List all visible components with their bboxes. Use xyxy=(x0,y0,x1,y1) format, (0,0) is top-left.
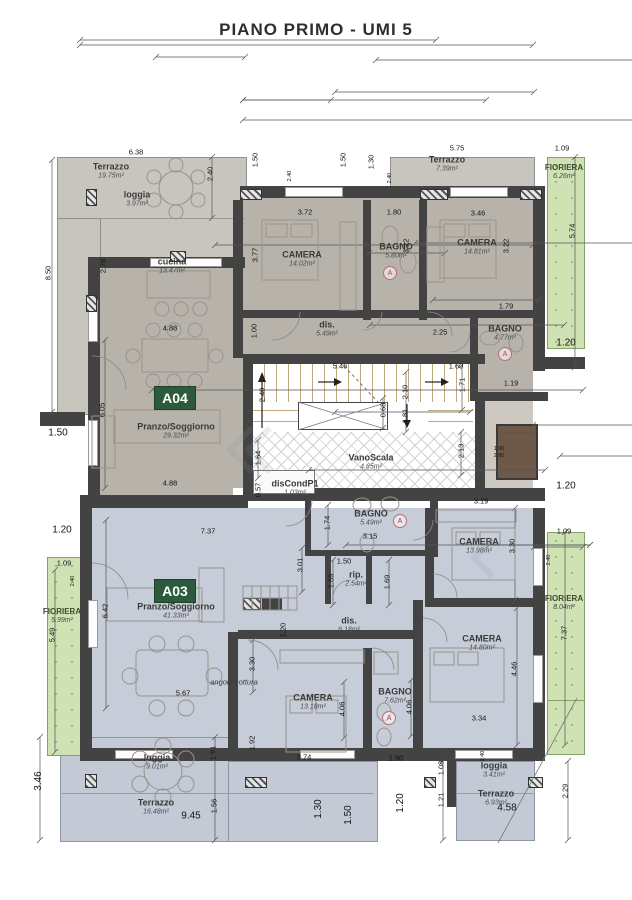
room-area: 14.81m² xyxy=(457,248,497,256)
dimension-label: 1.79 xyxy=(499,302,514,311)
room-label: VanoScala4.65m² xyxy=(348,452,393,471)
dimension-label: 3.72 xyxy=(298,208,313,217)
dimension-label: 1.00 xyxy=(250,324,259,339)
dimension-label: 1.69 xyxy=(383,575,392,590)
room-label: angolo cottura xyxy=(210,678,258,687)
room-area: 41.33m² xyxy=(137,612,215,620)
dimension-label: 5.75 xyxy=(450,144,465,153)
room-name: BAGNO xyxy=(378,686,412,697)
dimension-label: 4.06 xyxy=(338,702,347,717)
room-label: CAMERA14.81m² xyxy=(457,237,497,256)
unit-badge-a04: A04 xyxy=(154,386,196,410)
dimension-label: 1.50 xyxy=(339,153,348,168)
dimension-label: 1.09 xyxy=(57,559,72,568)
dimension-label: 1.20 xyxy=(52,525,71,536)
room-area: 4.65m² xyxy=(348,463,393,471)
room-label: FIORIERA6.26m² xyxy=(545,163,583,181)
room-name: Terrazzo xyxy=(93,161,129,172)
dimension-label: 7.37 xyxy=(201,527,216,536)
dimension-label: 2.13 xyxy=(457,444,466,459)
dimension-label: 1.50 xyxy=(337,557,352,566)
elevator-x xyxy=(298,402,388,430)
dimension-label: 3.34 xyxy=(472,714,487,723)
room-label: cucina13.47m² xyxy=(158,256,187,275)
room-label: Pranzo/Soggiorno41.33m² xyxy=(137,601,215,620)
room-label: rip.2.54m² xyxy=(345,569,367,588)
dimension-label: 2.80 xyxy=(494,453,505,459)
dimension-label: 7.37 xyxy=(560,626,569,641)
dimension-label: 4.06 xyxy=(405,700,414,715)
dimension-label: 1.09 xyxy=(555,144,570,153)
dimension-label: 1.21 xyxy=(437,793,446,808)
dimension-label: 1.30 xyxy=(313,799,325,818)
floor-plan: PIANO PRIMO - UMI 5 Terrazzo19.75m²loggi… xyxy=(0,0,632,900)
dimension-label: 3.30 xyxy=(508,539,517,554)
dimension-label: 1.60 xyxy=(449,362,464,371)
room-name: FIORIERA xyxy=(545,594,583,604)
room-area: 14.02m² xyxy=(282,260,322,268)
dimension-label: 1.20 xyxy=(395,793,407,812)
fixture-marker: A xyxy=(498,347,512,361)
room-label: Terrazzo16.48m² xyxy=(138,797,174,816)
dimension-label: 2.40 xyxy=(287,171,293,182)
room-area: 3.41m² xyxy=(481,771,508,779)
dimension-label: 1.50 xyxy=(343,805,355,824)
room-label: CAMERA13.98m² xyxy=(459,536,499,555)
dimension-label: 3.22 xyxy=(502,239,511,254)
dimension-label: 1.64 xyxy=(254,451,263,466)
dimension-label: 6.38 xyxy=(129,148,144,157)
dimension-label: 1.19 xyxy=(504,379,519,388)
dimension-label: 3.77 xyxy=(251,248,260,263)
dimension-label: 2.40 xyxy=(206,167,215,182)
dimension-label: 1.71 xyxy=(458,378,467,393)
room-name: loggia xyxy=(124,189,151,200)
dimension-label: 2.40 xyxy=(258,388,267,403)
dimension-label: 1.91 xyxy=(209,746,218,761)
dimension-label: 2.40 xyxy=(480,751,486,762)
room-area: 6.26m² xyxy=(545,173,583,181)
room-area: 1.03m² xyxy=(271,489,318,497)
dimension-label: 1.90 xyxy=(494,446,505,452)
dimension-label: 1.09 xyxy=(557,527,572,536)
dimension-label: 1.20 xyxy=(279,623,288,638)
dimension-label: 4.58 xyxy=(497,803,516,814)
dimension-label: 3.46 xyxy=(471,209,486,218)
room-area: 5.49m² xyxy=(316,330,338,338)
dimension-lines xyxy=(37,37,632,843)
dimension-label: 2.40 xyxy=(70,576,76,587)
dimension-label: 4.88 xyxy=(163,324,178,333)
room-name: BAGNO xyxy=(354,508,388,519)
room-label: CAMERA13.18m² xyxy=(293,692,333,711)
room-name: Terrazzo xyxy=(138,797,174,808)
room-name: loggia xyxy=(144,752,171,763)
room-area: 2.54m² xyxy=(345,580,367,588)
plan-linework xyxy=(0,0,632,900)
dimension-label: 5.74 xyxy=(568,224,577,239)
room-area: 13.47m² xyxy=(158,267,187,275)
stair-graphics xyxy=(258,366,449,430)
room-name: CAMERA xyxy=(462,633,502,644)
room-name: Terrazzo xyxy=(478,788,514,799)
room-name: Terrazzo xyxy=(429,154,465,165)
dimension-label: 3.15 xyxy=(363,532,378,541)
dimension-label: 5.49 xyxy=(48,628,57,643)
dimension-label: 3.74 xyxy=(297,753,312,762)
room-name: FIORIERA xyxy=(545,163,583,173)
dimension-label: 1.20 xyxy=(556,481,575,492)
room-name: disCondP1 xyxy=(271,478,318,489)
room-label: CAMERA14.02m² xyxy=(282,249,322,268)
room-area: 14.80m² xyxy=(462,644,502,652)
dimension-label: 1.56 xyxy=(210,799,219,814)
dimension-label: 1.80 xyxy=(387,208,402,217)
dimension-label: 3.30 xyxy=(248,657,257,672)
dimension-label: 0.68 xyxy=(379,403,388,418)
room-area: 8.04m² xyxy=(545,604,583,612)
room-area: 5.49m² xyxy=(354,519,388,527)
room-name: dis. xyxy=(316,319,338,330)
dimension-label: 0.57 xyxy=(254,483,263,498)
room-area: 16.48m² xyxy=(138,808,174,816)
room-area: 4.77m² xyxy=(488,334,522,342)
fixture-marker: A xyxy=(393,514,407,528)
room-label: FIORIERA8.04m² xyxy=(545,594,583,612)
room-label: CAMERA14.80m² xyxy=(462,633,502,652)
dimension-label: 1.20 xyxy=(556,338,575,349)
room-name: loggia xyxy=(481,760,508,771)
room-label: dis.5.49m² xyxy=(316,319,338,338)
room-name: Pranzo/Soggiorno xyxy=(137,601,215,612)
dimension-label: 5.46 xyxy=(333,362,348,371)
dimension-label: 6.42 xyxy=(101,604,110,619)
room-label: Terrazzo19.75m² xyxy=(93,161,129,180)
room-name: angolo cottura xyxy=(210,678,258,687)
dimension-label: 1.69 xyxy=(327,574,336,589)
dimension-label: 1.30 xyxy=(367,155,376,170)
room-label: loggia3.97m² xyxy=(124,189,151,208)
dimension-label: 1.92 xyxy=(248,736,257,751)
fioriera-diagonal-line xyxy=(498,698,577,843)
room-label: dis.6.18m² xyxy=(338,615,360,634)
dimension-label: 3.01 xyxy=(296,558,305,573)
room-name: CAMERA xyxy=(459,536,499,547)
room-label: loggia3.41m² xyxy=(481,760,508,779)
room-label: Pranzo/Soggiorno29.32m² xyxy=(137,421,215,440)
room-label: loggia9.01m² xyxy=(144,752,171,771)
room-name: rip. xyxy=(345,569,367,580)
unit-badge-a03: A03 xyxy=(154,579,196,603)
room-area: 5.99m² xyxy=(43,617,81,625)
stair-dashed-line xyxy=(344,366,380,404)
room-name: CAMERA xyxy=(457,237,497,248)
room-label: Terrazzo7.39m² xyxy=(429,154,465,173)
dimension-label: 1.50 xyxy=(48,428,67,439)
dimension-label: 9.45 xyxy=(181,811,200,822)
room-name: CAMERA xyxy=(282,249,322,260)
room-area: 29.32m² xyxy=(137,432,215,440)
room-area: 13.98m² xyxy=(459,547,499,555)
dimension-label: 4.88 xyxy=(163,479,178,488)
dimension-label: 3.22 xyxy=(402,239,411,254)
dimension-label: 5.67 xyxy=(176,689,191,698)
dimension-label: 2.40 xyxy=(546,555,552,566)
dimension-label: 1.50 xyxy=(251,153,260,168)
room-label: disCondP11.03m² xyxy=(271,478,318,497)
room-area: 3.97m² xyxy=(124,200,151,208)
room-name: FIORIERA xyxy=(43,607,81,617)
dimension-label: 2.10 xyxy=(401,385,410,400)
dimension-label: 1.81 xyxy=(401,409,410,424)
room-name: VanoScala xyxy=(348,452,393,463)
room-name: cucina xyxy=(158,256,187,267)
dimension-label: 2.76 xyxy=(99,259,108,274)
dimension-label: 2.25 xyxy=(433,328,448,337)
room-label: FIORIERA5.99m² xyxy=(43,607,81,625)
room-name: CAMERA xyxy=(293,692,333,703)
dimension-label: 1.74 xyxy=(323,516,332,531)
room-area: 9.01m² xyxy=(144,763,171,771)
room-name: Pranzo/Soggiorno xyxy=(137,421,215,432)
room-area: 6.18m² xyxy=(338,626,360,634)
room-area: 7.39m² xyxy=(429,165,465,173)
room-area: 5.80m² xyxy=(379,252,413,260)
room-label: BAGNO4.77m² xyxy=(488,323,522,342)
room-area: 19.75m² xyxy=(93,172,129,180)
dimension-label: 6.05 xyxy=(98,403,107,418)
room-name: dis. xyxy=(338,615,360,626)
dimension-label: 3.19 xyxy=(474,497,489,506)
room-area: 13.18m² xyxy=(293,703,333,711)
dimension-label: 8.50 xyxy=(44,266,53,281)
dimension-label: 2.29 xyxy=(561,784,570,799)
dimension-label: 2.40 xyxy=(387,173,393,184)
dimension-label: 1.08 xyxy=(437,761,446,776)
room-name: BAGNO xyxy=(488,323,522,334)
dimension-label: 1.90 xyxy=(389,754,404,763)
room-label: BAGNO5.49m² xyxy=(354,508,388,527)
dimension-label: 3.46 xyxy=(33,771,45,790)
fixture-marker: A xyxy=(383,266,397,280)
dimension-label: 4.46 xyxy=(510,662,519,677)
fixture-marker: A xyxy=(382,711,396,725)
